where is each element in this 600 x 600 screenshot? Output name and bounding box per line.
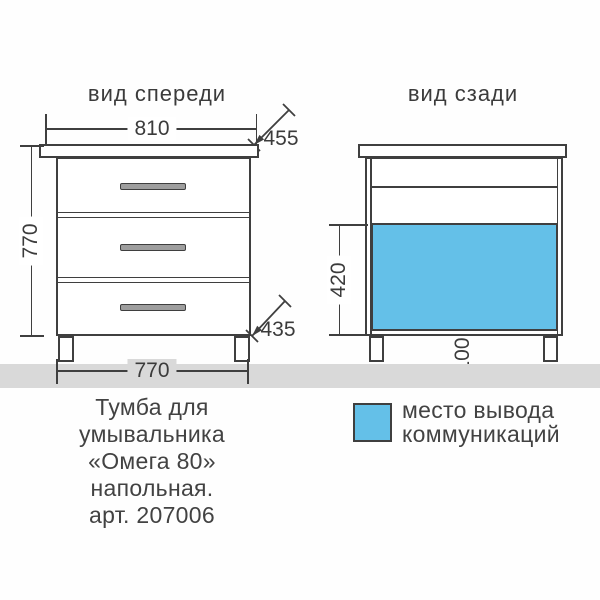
dim-tick-top (20, 145, 44, 147)
drawer-divider-2 (58, 277, 249, 283)
back-countertop (358, 144, 567, 158)
dim-top-depth-label: 455 (256, 127, 305, 151)
dim-bottom-depth-label: 435 (253, 318, 302, 342)
caption-line-3: «Омега 80» (79, 448, 225, 475)
front-leg-left (58, 336, 74, 362)
legend-label: место вывода коммуникаций (402, 398, 560, 446)
floor-strip (0, 364, 600, 388)
caption-line-4: напольная. (79, 475, 225, 502)
legend-label-line-2: коммуникаций (402, 422, 560, 446)
front-countertop (39, 144, 259, 158)
dim-height-label: 770 (19, 216, 43, 265)
legend-label-line-1: место вывода (402, 398, 560, 422)
drawer-handle-2 (120, 244, 186, 251)
communications-cutout-area (371, 223, 558, 331)
dim-cutout-height-label: 420 (327, 255, 351, 304)
back-top-rail (370, 186, 558, 188)
drawer-divider-1 (58, 212, 249, 218)
back-leg-right (543, 336, 558, 362)
dim-tick-right (247, 359, 249, 384)
drawer-handle-3 (120, 304, 186, 311)
legend-swatch (353, 403, 392, 442)
dim-bottom-width-label: 770 (127, 359, 176, 383)
back-leg-left (369, 336, 384, 362)
caption-line-2: умывальника (79, 421, 225, 448)
dim-tick-left (56, 359, 58, 384)
product-dimensions-diagram: вид спереди 810 455 770 435 вид сзади (0, 0, 600, 600)
product-caption: Тумба для умывальника «Омега 80» напольн… (79, 394, 225, 529)
caption-line-1: Тумба для (79, 394, 225, 421)
front-view-title: вид спереди (88, 81, 226, 107)
dim-top-width-label: 810 (127, 117, 176, 141)
drawer-handle-1 (120, 183, 186, 190)
dim-tick-left (45, 114, 47, 146)
dim-tick-top (329, 224, 368, 226)
dim-tick-bottom (20, 335, 44, 337)
dim-tick-bottom (329, 334, 368, 336)
back-view-title: вид сзади (408, 81, 518, 107)
caption-line-5: арт. 207006 (79, 502, 225, 529)
